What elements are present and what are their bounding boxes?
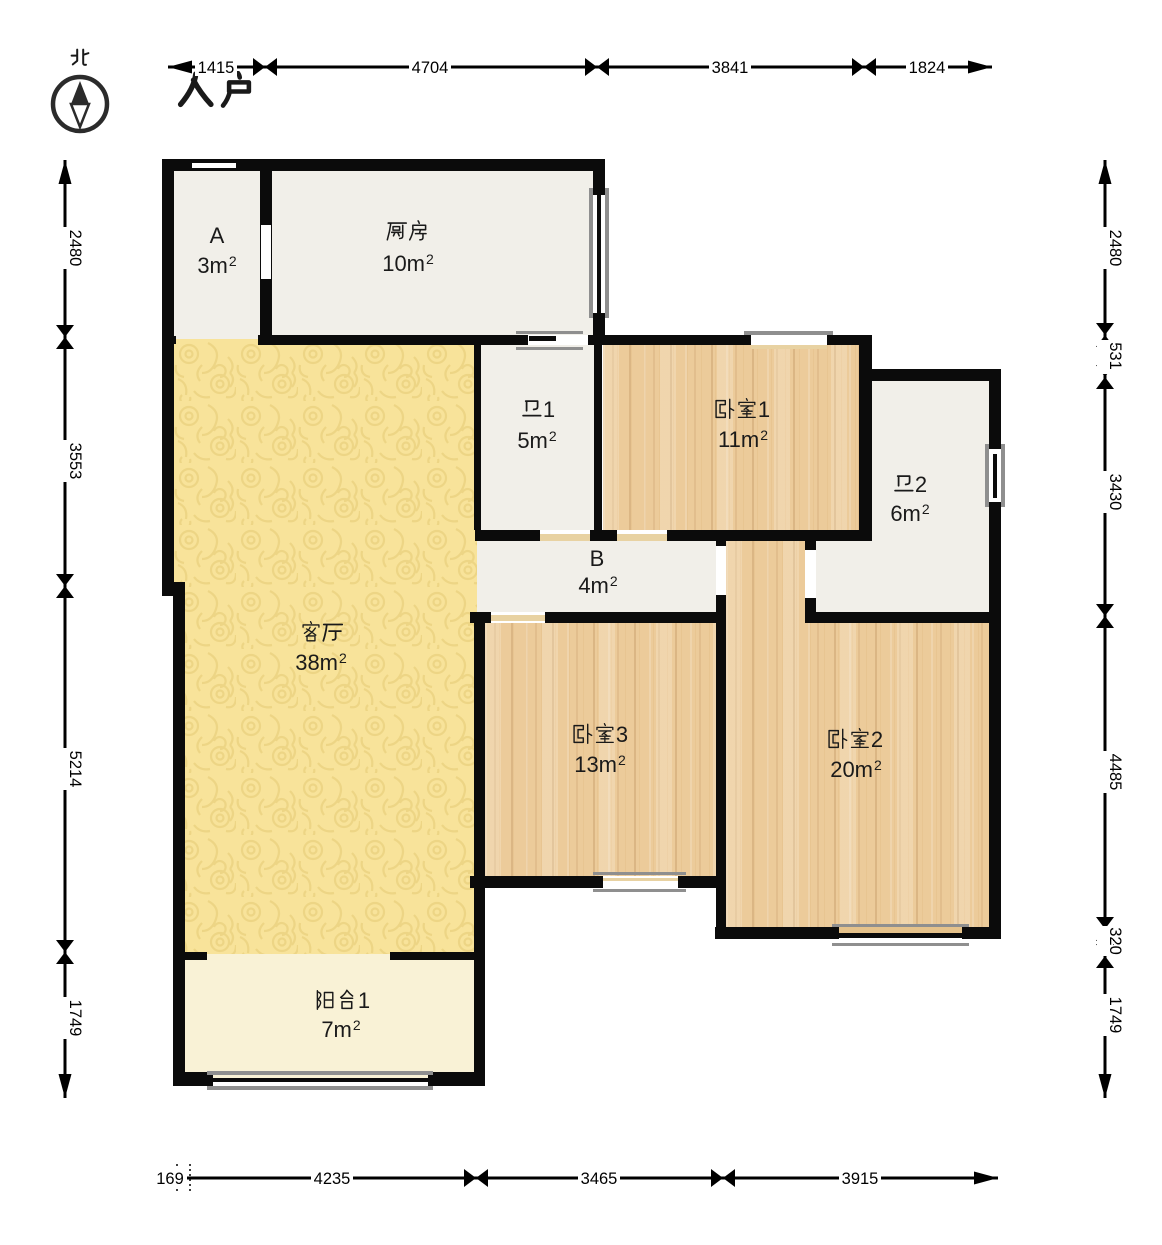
svg-text:3553: 3553 [66,443,82,480]
svg-text:2480: 2480 [1106,230,1122,267]
svg-text:320: 320 [1106,927,1122,955]
svg-text:1824: 1824 [909,59,946,77]
svg-text:4485: 4485 [1106,754,1122,791]
svg-text:1749: 1749 [66,1000,82,1037]
svg-text:3465: 3465 [581,1170,618,1188]
svg-text:4235: 4235 [314,1170,351,1188]
svg-text:1415: 1415 [198,59,235,77]
svg-text:1749: 1749 [1106,997,1122,1034]
svg-text:5214: 5214 [66,751,82,788]
svg-text:169: 169 [156,1170,184,1188]
svg-text:3915: 3915 [842,1170,879,1188]
svg-text:3841: 3841 [712,59,749,77]
svg-text:4704: 4704 [412,59,449,77]
svg-text:531: 531 [1106,342,1122,370]
svg-text:2480: 2480 [66,230,82,267]
svg-text:3430: 3430 [1106,474,1122,511]
